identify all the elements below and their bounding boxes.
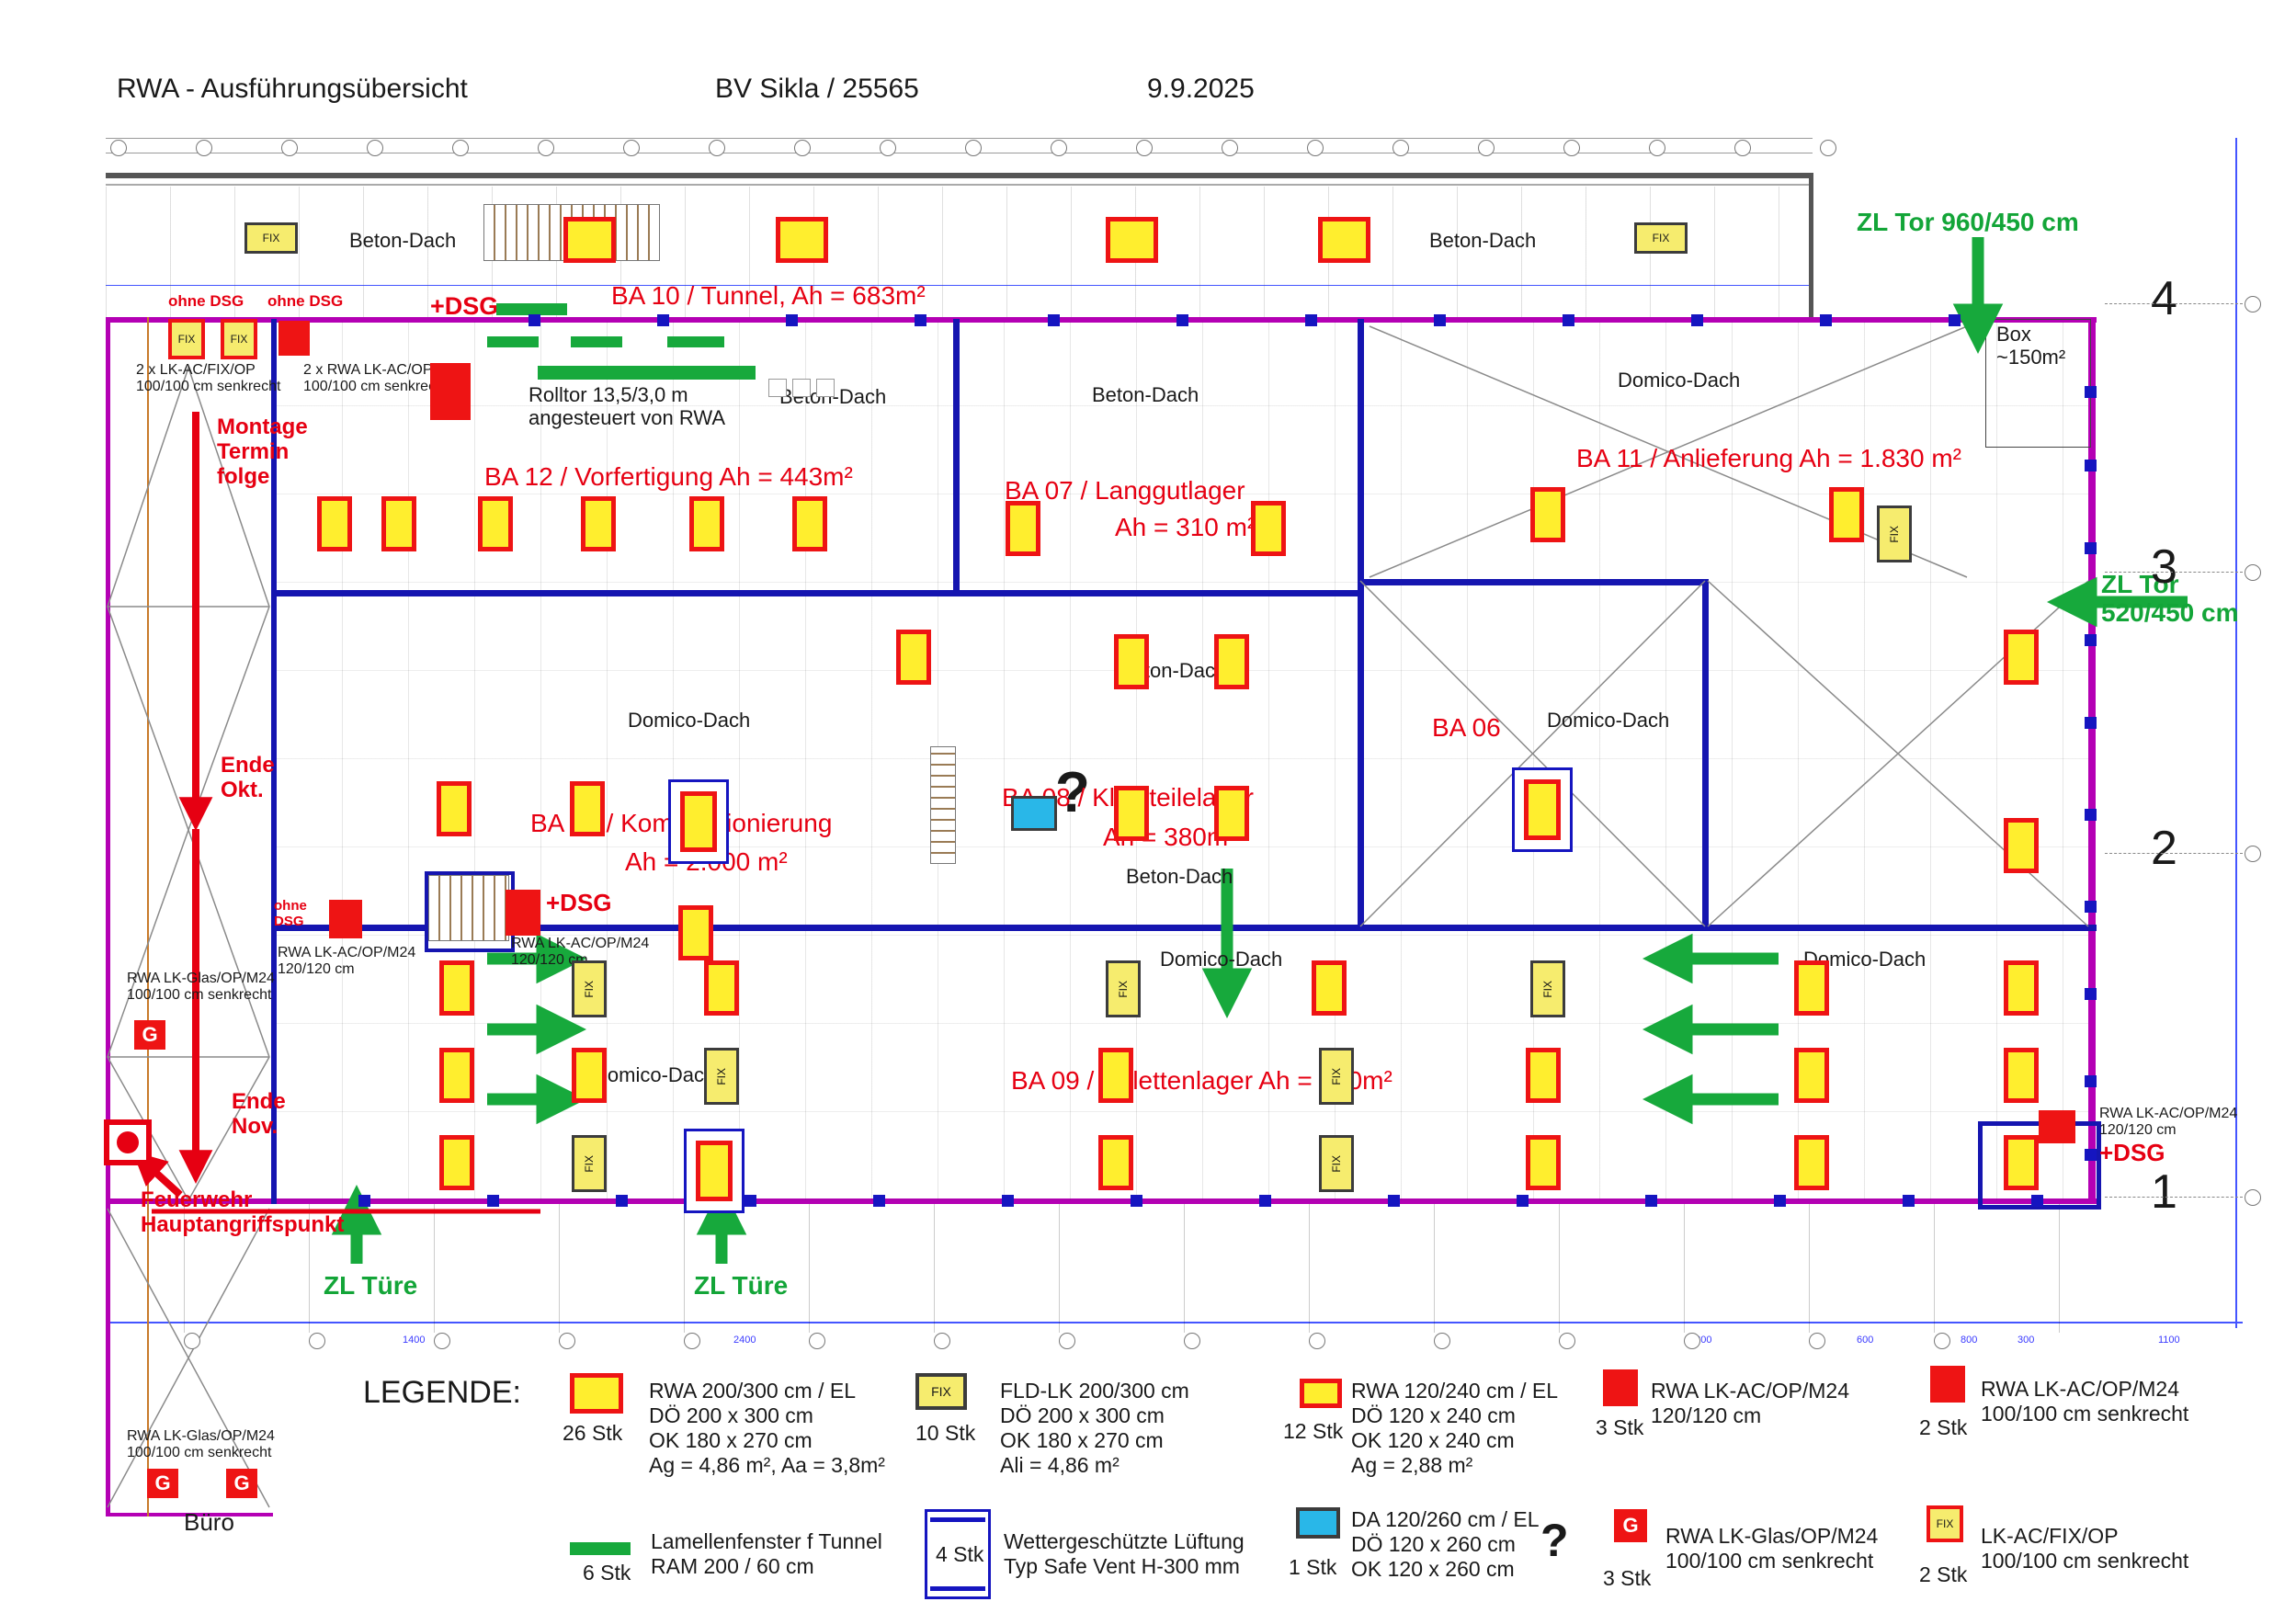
rwa-window-tile [317, 496, 352, 551]
rwa-window-tile [1526, 1048, 1561, 1103]
column-marker [358, 1195, 370, 1207]
column-marker [1002, 1195, 1014, 1207]
column-marker [1645, 1195, 1657, 1207]
grid-bubble [1434, 1333, 1450, 1349]
grid-bubble [559, 1333, 575, 1349]
plan-label: +DSG [430, 292, 498, 320]
plan-label: BA 10 / Tunnel, Ah = 683m² [611, 281, 926, 310]
plan-label: Beton-Dach [1126, 866, 1233, 889]
column-marker [1176, 314, 1188, 326]
fire-attack-point-dot [117, 1131, 139, 1153]
rwa-glas-tile: G [134, 1020, 165, 1050]
grid-bubble [184, 1333, 200, 1349]
column-marker [1774, 1195, 1786, 1207]
legend-count: 2 Stk [1919, 1415, 1967, 1440]
legend-icon-red_sq [1603, 1369, 1638, 1406]
grid-bubble [1934, 1333, 1950, 1349]
legend-icon-g_sq: G [1614, 1509, 1647, 1542]
plan-label: 1100 [2158, 1335, 2180, 1346]
column-marker [915, 314, 926, 326]
rwa-facade-tile [329, 900, 362, 938]
legend-text: RWA LK-AC/OP/M24 120/120 cm [1651, 1379, 1849, 1428]
rwa-window-tile [1829, 487, 1864, 542]
grid-bubble [2245, 296, 2261, 312]
small-equipment-box [768, 379, 787, 397]
safevent-rwa-combo-tile [668, 779, 729, 864]
legend-text: DA 120/260 cm / EL DÖ 120 x 260 cm OK 12… [1351, 1507, 1540, 1582]
grid-bubble [452, 140, 469, 156]
plan-label: RWA LK-AC/OP/M24 120/120 cm [2099, 1106, 2237, 1139]
small-equipment-box [792, 379, 811, 397]
plan-label: 1 [2151, 1165, 2177, 1219]
legend-icon-rwa_small [1300, 1379, 1342, 1408]
plan-label: +DSG [546, 890, 612, 916]
legend-text: FLD-LK 200/300 cm DÖ 200 x 300 cm OK 180… [1000, 1379, 1189, 1478]
column-marker [1563, 314, 1574, 326]
da-dome-tile [1011, 796, 1057, 831]
fix-window-tile: FIX [1319, 1135, 1354, 1192]
column-marker [873, 1195, 885, 1207]
rwa-window-tile [1114, 786, 1149, 841]
grid-bubble [1820, 140, 1836, 156]
grid-bubble [2245, 846, 2261, 862]
rwa-window-tile [1106, 217, 1158, 263]
grid-bubble [1734, 140, 1751, 156]
rwa-window-tile [1214, 786, 1249, 841]
plan-label: Ende Nov. [232, 1090, 286, 1140]
grid-bubble [281, 140, 298, 156]
plan-label: BA 07 / Langgutlager [1005, 476, 1245, 505]
grid-bubble [1649, 140, 1665, 156]
rwa-window-tile [439, 1048, 474, 1103]
legend-count: 10 Stk [915, 1421, 975, 1446]
lamellenfenster-bar [538, 366, 756, 380]
plan-label: 2 x LK-AC/FIX/OP 100/100 cm senkrecht [136, 362, 280, 395]
rwa-window-tile [2004, 818, 2039, 873]
plan-label: ZL Tor 960/450 cm [1857, 208, 2079, 236]
plan-label: 4 [2151, 272, 2177, 325]
fix-facade-tile: FIX [221, 319, 257, 359]
legend-text: RWA LK-AC/OP/M24 100/100 cm senkrecht [1981, 1377, 2188, 1426]
small-equipment-box [816, 379, 835, 397]
grid-bubble [684, 1333, 700, 1349]
plan-label: Domico-Dach [1618, 369, 1740, 392]
grid-bubble [794, 140, 811, 156]
column-marker [1048, 314, 1060, 326]
grid-bubble [965, 140, 982, 156]
grid-bubble [1809, 1333, 1825, 1349]
plan-label: Beton-Dach [1092, 384, 1199, 407]
plan-label: 1400 [403, 1335, 425, 1346]
lamellenfenster-bar [571, 336, 622, 347]
rwa-window-tile [1114, 634, 1149, 689]
grid-row-line [2105, 1197, 2243, 1198]
column-marker [2085, 542, 2097, 554]
column-marker [1259, 1195, 1271, 1207]
grid-bubble [934, 1333, 950, 1349]
plan-label: RWA LK-AC/OP/M24 120/120 cm [278, 945, 415, 978]
safevent-rwa-combo-tile [1512, 767, 1573, 852]
grid-bubble [1309, 1333, 1325, 1349]
plan-label: ZL Türe [694, 1271, 788, 1300]
plan-label: BA 11 / Anlieferung Ah = 1.830 m² [1576, 444, 1961, 472]
plan-label: 300 [2018, 1335, 2034, 1346]
grid-bubble [1184, 1333, 1200, 1349]
plan-label: BA 06 [1432, 713, 1501, 742]
fix-window-tile: FIX [1319, 1048, 1354, 1105]
fix-window-tile: FIX [1877, 505, 1912, 562]
grid-bubble [709, 140, 725, 156]
grid-bubble [538, 140, 554, 156]
grid-bubble [1051, 140, 1067, 156]
plan-label: Büro [184, 1509, 234, 1536]
drawing-canvas: { "header": { "title": "RWA - Ausführung… [0, 0, 2296, 1613]
plan-label: Montage Termin folge [217, 415, 308, 490]
grid-bubble [1563, 140, 1580, 156]
plan-label: BA 12 / Vorfertigung Ah = 443m² [484, 462, 853, 491]
plan-label: RWA LK-Glas/OP/M24 100/100 cm senkrecht [127, 1428, 275, 1461]
column-marker [2085, 988, 2097, 1000]
grid-bubble [1478, 140, 1495, 156]
column-marker [2085, 386, 2097, 398]
column-marker [1434, 314, 1446, 326]
legend-icon-rwa_big [570, 1373, 623, 1414]
legend-count: 3 Stk [1603, 1566, 1651, 1591]
rwa-facade-tile [506, 890, 540, 936]
rwa-window-tile [1006, 501, 1040, 556]
legend-text: Lamellenfenster f Tunnel RAM 200 / 60 cm [651, 1529, 882, 1579]
column-marker [1517, 1195, 1529, 1207]
rwa-window-tile [478, 496, 513, 551]
rwa-window-tile [437, 781, 472, 836]
lamellenfenster-bar [667, 336, 724, 347]
column-marker [2085, 717, 2097, 729]
legend-icon-cyan [1296, 1507, 1340, 1539]
legend-count: 6 Stk [583, 1561, 631, 1585]
grid-bubble [1559, 1333, 1575, 1349]
column-marker [786, 314, 798, 326]
legend-icon-red_sq [1930, 1366, 1965, 1403]
column-marker [2085, 1075, 2097, 1087]
column-marker [1388, 1195, 1400, 1207]
fire-attack-point-marker [104, 1119, 152, 1165]
column-marker [2085, 809, 2097, 821]
column-marker [2031, 1195, 2043, 1207]
rwa-window-tile [776, 217, 828, 263]
legend-text: RWA LK-Glas/OP/M24 100/100 cm senkrecht [1665, 1524, 1878, 1573]
rwa-window-tile [439, 960, 474, 1016]
grid-bubble [623, 140, 640, 156]
grid-bubble [1307, 140, 1324, 156]
rwa-window-tile [704, 960, 739, 1016]
rwa-window-tile [1794, 1135, 1829, 1190]
column-marker [657, 314, 669, 326]
plan-label: ohne DSG [267, 292, 343, 310]
fix-window-tile: FIX [1106, 960, 1141, 1017]
column-marker [2085, 1149, 2097, 1161]
plan-label: Beton-Dach [349, 230, 456, 253]
rwa-window-tile [792, 496, 827, 551]
legend-count: 12 Stk [1283, 1419, 1343, 1444]
legend-icon-green_bar [570, 1542, 631, 1555]
fix-window-tile: FIX [704, 1048, 739, 1105]
grid-bubble [1136, 140, 1153, 156]
plan-label: 3 [2151, 540, 2177, 594]
column-marker [616, 1195, 628, 1207]
plan-label: +DSG [2099, 1140, 2165, 1166]
rwa-window-tile [678, 905, 713, 960]
legend-text: LK-AC/FIX/OP 100/100 cm senkrecht [1981, 1524, 2188, 1573]
rwa-window-tile [896, 630, 931, 685]
rwa-window-tile [439, 1135, 474, 1190]
rwa-window-tile [2004, 960, 2039, 1016]
column-marker [1903, 1195, 1915, 1207]
legend-count: 26 Stk [563, 1421, 622, 1446]
rwa-facade-tile [278, 321, 310, 356]
rwa-window-tile [2004, 630, 2039, 685]
column-marker [1131, 1195, 1142, 1207]
grid-bubble [880, 140, 896, 156]
rwa-window-tile [2004, 1048, 2039, 1103]
plan-label: ohne DSG [274, 899, 307, 930]
legend-count: 4 Stk [936, 1542, 983, 1567]
plan-label: ohne DSG [168, 292, 244, 310]
grid-bubble [196, 140, 212, 156]
plan-label: Ah = 310 m² [1115, 513, 1256, 541]
column-marker [487, 1195, 499, 1207]
rwa-window-tile [2004, 1135, 2039, 1190]
legend-count: 2 Stk [1919, 1562, 1967, 1587]
column-marker [1691, 314, 1703, 326]
legend-text: RWA 120/240 cm / EL DÖ 120 x 240 cm OK 1… [1351, 1379, 1558, 1478]
plan-label: Feuerwehr Hauptangriffspunkt [141, 1188, 344, 1238]
grid-bubble [309, 1333, 325, 1349]
legend-count: 3 Stk [1596, 1415, 1643, 1440]
column-marker [2085, 901, 2097, 913]
legend-count: 1 Stk [1289, 1555, 1336, 1580]
rwa-window-tile [1098, 1135, 1133, 1190]
grid-bubble [809, 1333, 825, 1349]
grid-bubble [2245, 564, 2261, 581]
legend-icon-fix_red: FIX [1927, 1505, 1963, 1542]
legend-text: Wettergeschützte Lüftung Typ Safe Vent H… [1004, 1529, 1245, 1579]
column-marker [744, 1195, 756, 1207]
plan-label: 800 [1961, 1335, 1977, 1346]
rwa-window-tile [689, 496, 724, 551]
grid-row-line [2105, 572, 2243, 573]
grid-bubble [1222, 140, 1238, 156]
plan-label: 2 [2151, 822, 2177, 875]
plan-label: Domico-Dach [1160, 948, 1282, 971]
fix-window-tile: FIX [244, 222, 298, 254]
grid-bubble [434, 1333, 450, 1349]
legend-text: RWA 200/300 cm / EL DÖ 200 x 300 cm OK 1… [649, 1379, 885, 1478]
rwa-facade-tile [2039, 1110, 2075, 1143]
fix-window-tile: FIX [572, 960, 607, 1017]
rwa-window-tile [572, 1048, 607, 1103]
fix-facade-tile: FIX [168, 319, 205, 359]
rwa-window-tile [1526, 1135, 1561, 1190]
fix-window-tile: FIX [1634, 222, 1688, 254]
plan-label: ZL Türe [324, 1271, 417, 1300]
plan-label: ? [1540, 1515, 1569, 1566]
rwa-window-tile [581, 496, 616, 551]
plan-label: LEGENDE: [363, 1375, 521, 1410]
safevent-rwa-combo-tile [684, 1129, 744, 1213]
grid-row-line [2105, 303, 2243, 304]
fix-window-tile: FIX [572, 1135, 607, 1192]
fix-window-tile: FIX [1530, 960, 1565, 1017]
plan-label: 600 [1857, 1335, 1873, 1346]
rwa-window-tile [1794, 960, 1829, 1016]
plan-label: Rolltor 13,5/3,0 m angesteuert von RWA [529, 384, 725, 429]
grid-row-line [2105, 853, 2243, 854]
legend-icon-fix: FIX [915, 1373, 967, 1410]
rwa-window-tile [381, 496, 416, 551]
rwa-window-tile [1214, 634, 1249, 689]
column-marker [1949, 314, 1961, 326]
plan-label: Domico-Dach [1547, 710, 1669, 733]
grid-bubble [2245, 1189, 2261, 1206]
plan-label: Beton-Dach [1429, 230, 1536, 253]
lamellenfenster-bar [487, 336, 539, 347]
rwa-window-tile [1794, 1048, 1829, 1103]
grid-bubble [1392, 140, 1409, 156]
rwa-glas-tile: G [147, 1469, 178, 1498]
column-marker [2085, 460, 2097, 471]
plan-label: 2400 [733, 1335, 756, 1346]
grid-bubble [1684, 1333, 1700, 1349]
column-marker [1305, 314, 1317, 326]
plan-label: Domico-Dach [593, 1064, 715, 1087]
rwa-window-tile [1098, 1048, 1133, 1103]
rwa-window-tile [563, 217, 616, 263]
rwa-facade-tile [430, 363, 471, 420]
column-marker [529, 314, 540, 326]
rwa-window-tile [1530, 487, 1565, 542]
rwa-window-tile [1312, 960, 1347, 1016]
rwa-window-tile [1318, 217, 1370, 263]
rwa-glas-tile: G [226, 1469, 257, 1498]
plan-label: Domico-Dach [628, 710, 750, 733]
plan-label: RWA LK-Glas/OP/M24 100/100 cm senkrecht [127, 971, 275, 1004]
column-marker [2085, 634, 2097, 646]
plan-label: Ende Okt. [221, 754, 275, 803]
rwa-window-tile [1251, 501, 1286, 556]
column-marker [1820, 314, 1832, 326]
grid-bubble [110, 140, 127, 156]
grid-bubble [1059, 1333, 1075, 1349]
rwa-window-tile [570, 781, 605, 836]
grid-bubble [367, 140, 383, 156]
plan-label: Box ~150m² [1996, 324, 2065, 369]
